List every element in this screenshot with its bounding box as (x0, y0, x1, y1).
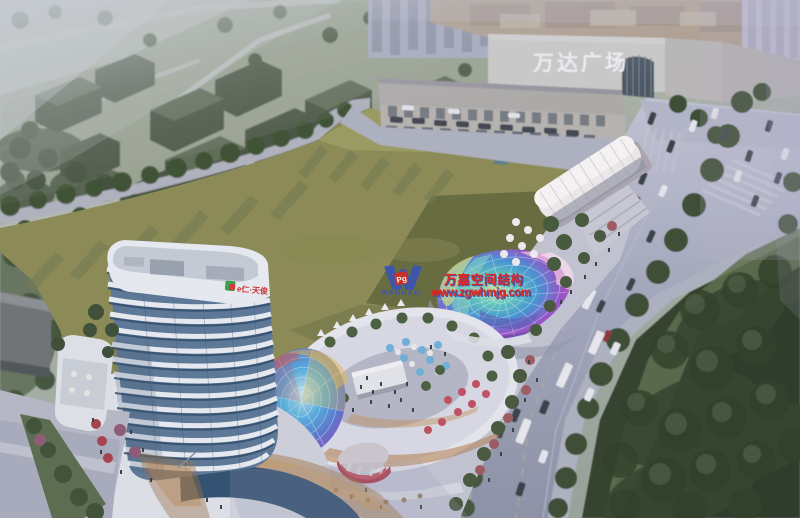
svg-text:WANHAO: WANHAO (381, 290, 420, 297)
svg-text:万嘉空间结构: 万嘉空间结构 (443, 272, 524, 287)
svg-text:www.zgwhmjg.com: www.zgwhmjg.com (430, 287, 531, 299)
